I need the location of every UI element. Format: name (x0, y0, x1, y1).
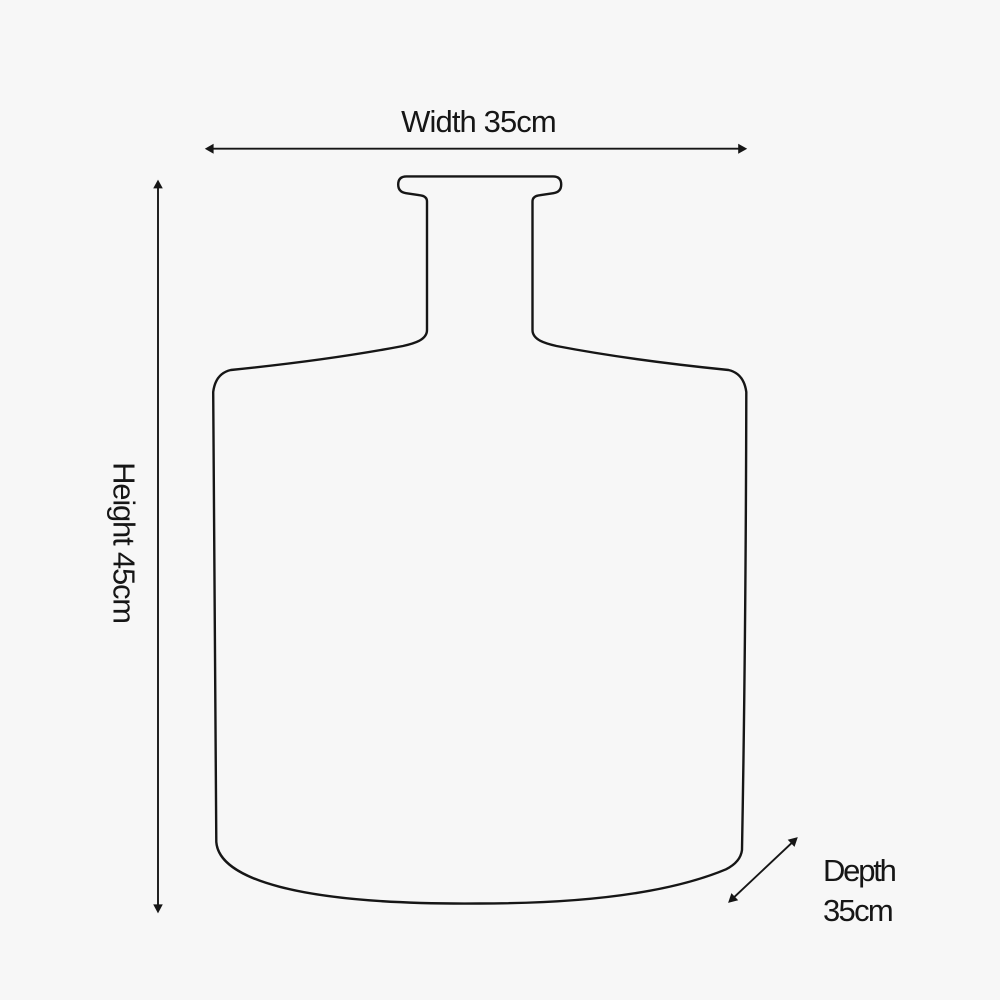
svg-text:35cm: 35cm (823, 893, 892, 928)
svg-text:Width 35cm: Width 35cm (401, 104, 556, 139)
svg-text:Height 45cm: Height 45cm (107, 462, 142, 623)
svg-text:Depth: Depth (823, 853, 896, 888)
